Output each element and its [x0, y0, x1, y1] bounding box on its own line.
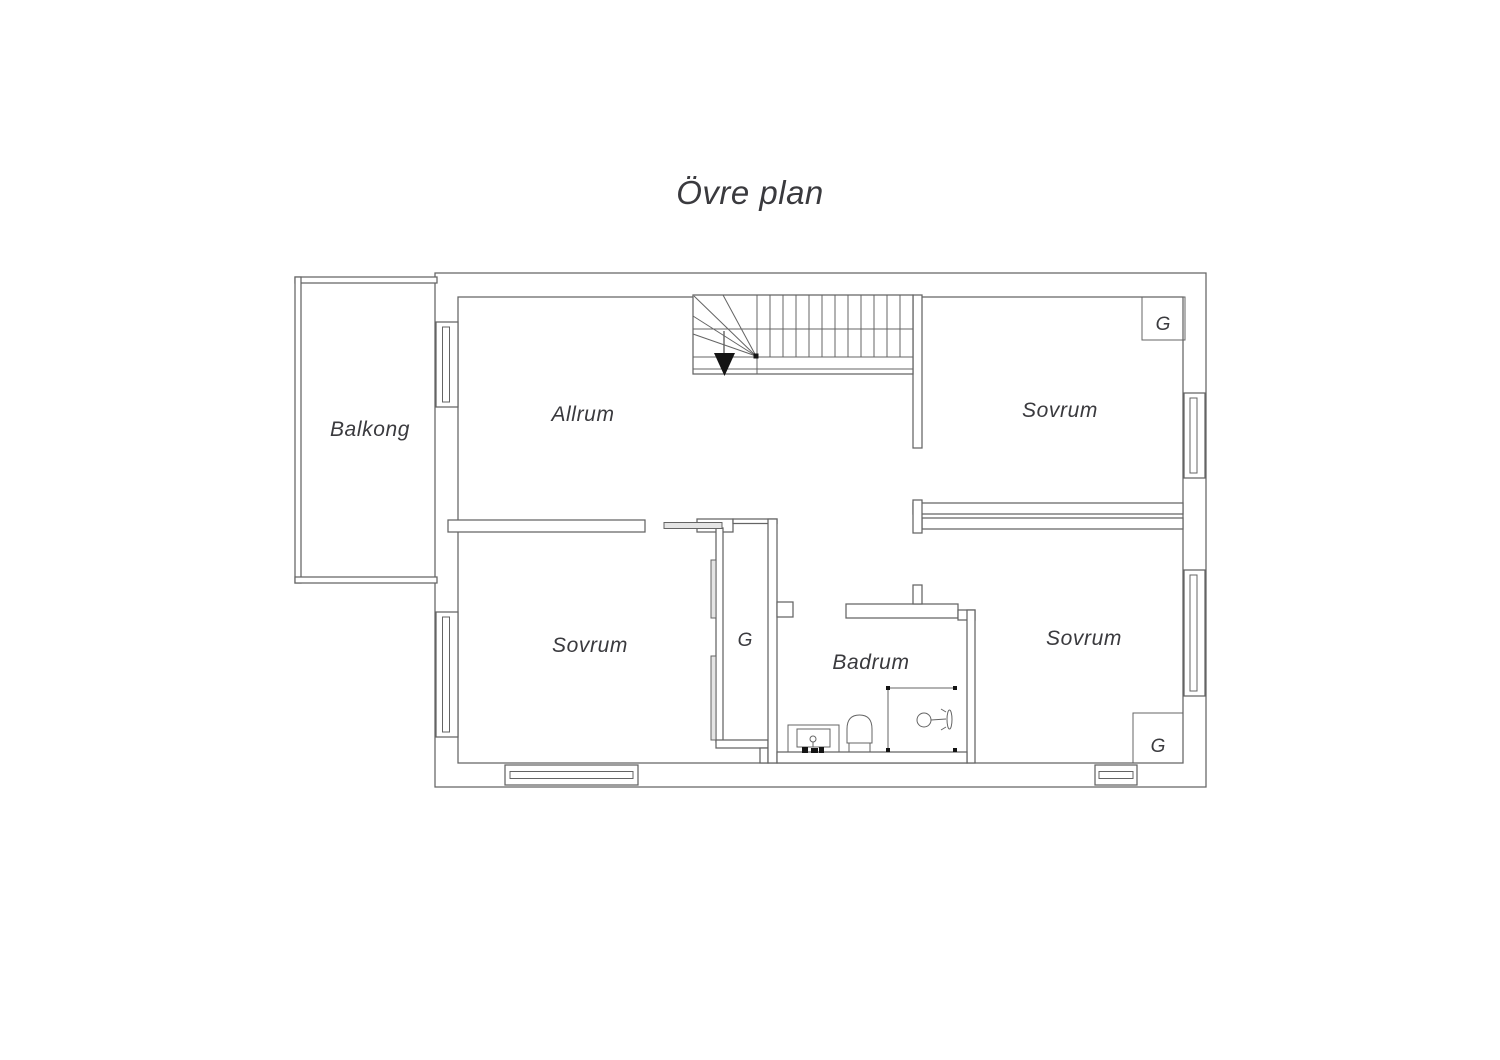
sliding-door-closet-lower [711, 656, 716, 740]
floor-plan-page: Balkong Allrum Sovrum Sovrum Sovrum Badr… [0, 0, 1500, 1060]
page-title: Övre plan [676, 174, 824, 211]
plan: Balkong Allrum Sovrum Sovrum Sovrum Badr… [295, 273, 1206, 787]
balcony-wall-top [295, 277, 437, 283]
room-label-living-room: Allrum [549, 403, 614, 426]
wall-bathroom-jamb-up [913, 585, 922, 604]
wall-closet-bottom [716, 740, 768, 748]
window-bedroom-bl-bottom [505, 765, 638, 785]
wall-bathroom-door-jamb [777, 602, 793, 617]
closet-boxes [1133, 297, 1185, 763]
windows [436, 322, 1205, 785]
wall-bathroom-west [768, 519, 777, 763]
floor-plan-drawing: Balkong Allrum Sovrum Sovrum Sovrum Badr… [0, 0, 1500, 1060]
window-bedroom-bl-left [436, 612, 458, 737]
balcony-wall-bottom [295, 577, 437, 583]
wall-bedrooms-divider-upper [913, 503, 1183, 514]
sliding-door-bedroom-bl [664, 523, 722, 529]
closet-label-walk-in: G [738, 630, 753, 651]
balcony-door-window [436, 322, 458, 407]
window-bedroom-br-bottom [1095, 765, 1137, 785]
room-label-balcony: Balkong [330, 418, 410, 441]
sliding-door-closet-upper [711, 560, 716, 618]
room-label-bedroom-top-right: Sovrum [1022, 399, 1098, 422]
room-label-bedroom-bottom-left: Sovrum [552, 634, 628, 657]
window-bedroom-tr-right [1184, 393, 1205, 478]
staircase [693, 295, 913, 376]
room-label-bathroom: Badrum [832, 651, 909, 674]
wall-stairs-bedroom [913, 295, 922, 448]
wall-divider-cap [913, 500, 922, 533]
wall-bathroom-north [846, 604, 958, 618]
wall-closet-west [716, 528, 723, 742]
wall-livingroom-bedroom [448, 520, 645, 532]
bathroom-fixtures [788, 686, 957, 753]
balcony-wall-left [295, 277, 301, 583]
closet-label-bottom-right: G [1151, 736, 1166, 757]
window-bedroom-br-right [1184, 570, 1205, 696]
wall-closet-step [760, 748, 768, 763]
wall-bedroom-br-west [967, 610, 975, 763]
sink-icon [788, 725, 839, 753]
shower-icon [886, 686, 957, 752]
room-label-bedroom-bottom-right: Sovrum [1046, 627, 1122, 650]
toilet-icon [847, 715, 872, 752]
sliding-doors [664, 523, 722, 741]
wall-bedrooms-divider-lower [922, 518, 1183, 529]
closet-label-top-right: G [1156, 314, 1171, 335]
wall-bathroom-south [777, 752, 967, 763]
